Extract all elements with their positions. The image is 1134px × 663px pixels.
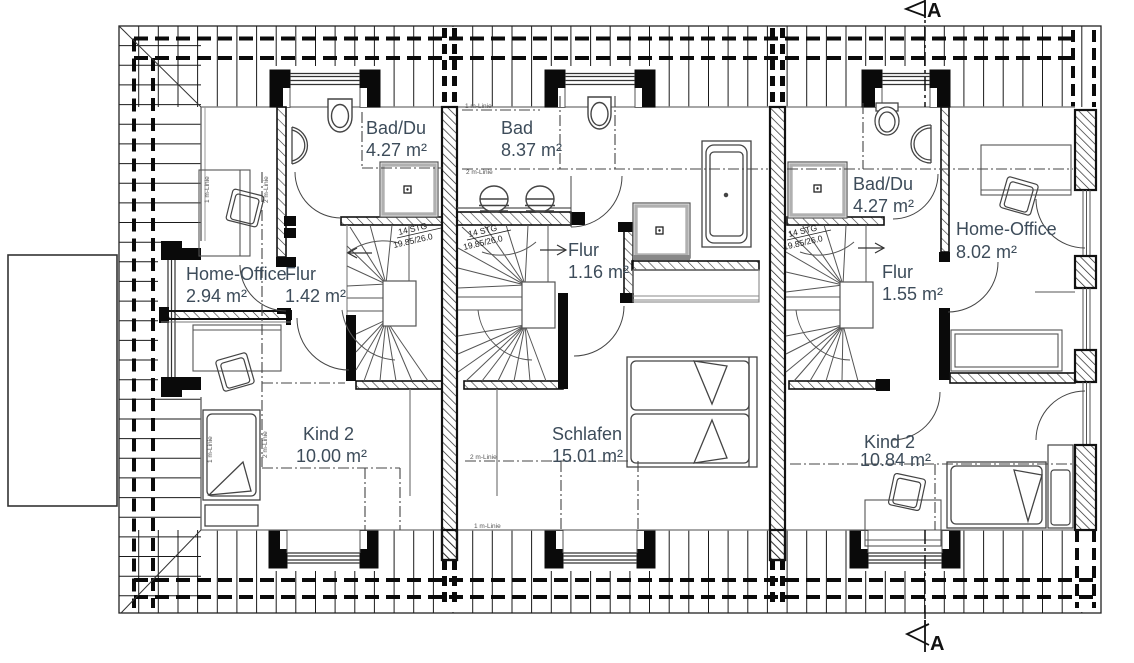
svg-text:4.27 m²: 4.27 m²	[366, 140, 427, 160]
svg-text:10.84 m²: 10.84 m²	[860, 450, 931, 470]
svg-text:4.27 m²: 4.27 m²	[853, 196, 914, 216]
svg-text:Kind 2: Kind 2	[864, 432, 915, 452]
svg-text:Bad: Bad	[501, 118, 533, 138]
svg-text:2.94 m²: 2.94 m²	[186, 286, 247, 306]
svg-text:Flur: Flur	[882, 262, 913, 282]
svg-text:8.02 m²: 8.02 m²	[956, 242, 1017, 262]
svg-text:1.16 m²: 1.16 m²	[568, 262, 629, 282]
svg-text:Kind 2: Kind 2	[303, 424, 354, 444]
svg-text:Bad/Du: Bad/Du	[853, 174, 913, 194]
svg-text:2 m-Linie: 2 m-Linie	[262, 431, 269, 458]
svg-text:1.42 m²: 1.42 m²	[285, 286, 346, 306]
svg-text:1 m-Linie: 1 m-Linie	[474, 523, 501, 530]
svg-text:1.55 m²: 1.55 m²	[882, 284, 943, 304]
svg-text:A: A	[927, 0, 941, 22]
svg-text:Home-Office: Home-Office	[186, 264, 287, 284]
svg-text:Schlafen: Schlafen	[552, 424, 622, 444]
svg-text:1 m-Linie: 1 m-Linie	[465, 103, 492, 110]
svg-text:2 m-Linie: 2 m-Linie	[263, 176, 270, 203]
svg-text:A: A	[930, 633, 944, 655]
svg-text:8.37 m²: 8.37 m²	[501, 140, 562, 160]
svg-text:15.01 m²: 15.01 m²	[552, 446, 623, 466]
svg-text:Flur: Flur	[285, 264, 316, 284]
svg-text:2 m-Linie: 2 m-Linie	[470, 454, 497, 461]
svg-text:Bad/Du: Bad/Du	[366, 118, 426, 138]
svg-text:10.00 m²: 10.00 m²	[296, 446, 367, 466]
svg-text:Flur: Flur	[568, 240, 599, 260]
svg-text:2 m-Linie: 2 m-Linie	[466, 169, 493, 176]
svg-text:1 m-Linie: 1 m-Linie	[207, 436, 214, 463]
svg-text:1 m-Linie: 1 m-Linie	[204, 176, 211, 203]
svg-text:Home-Office: Home-Office	[956, 219, 1057, 239]
